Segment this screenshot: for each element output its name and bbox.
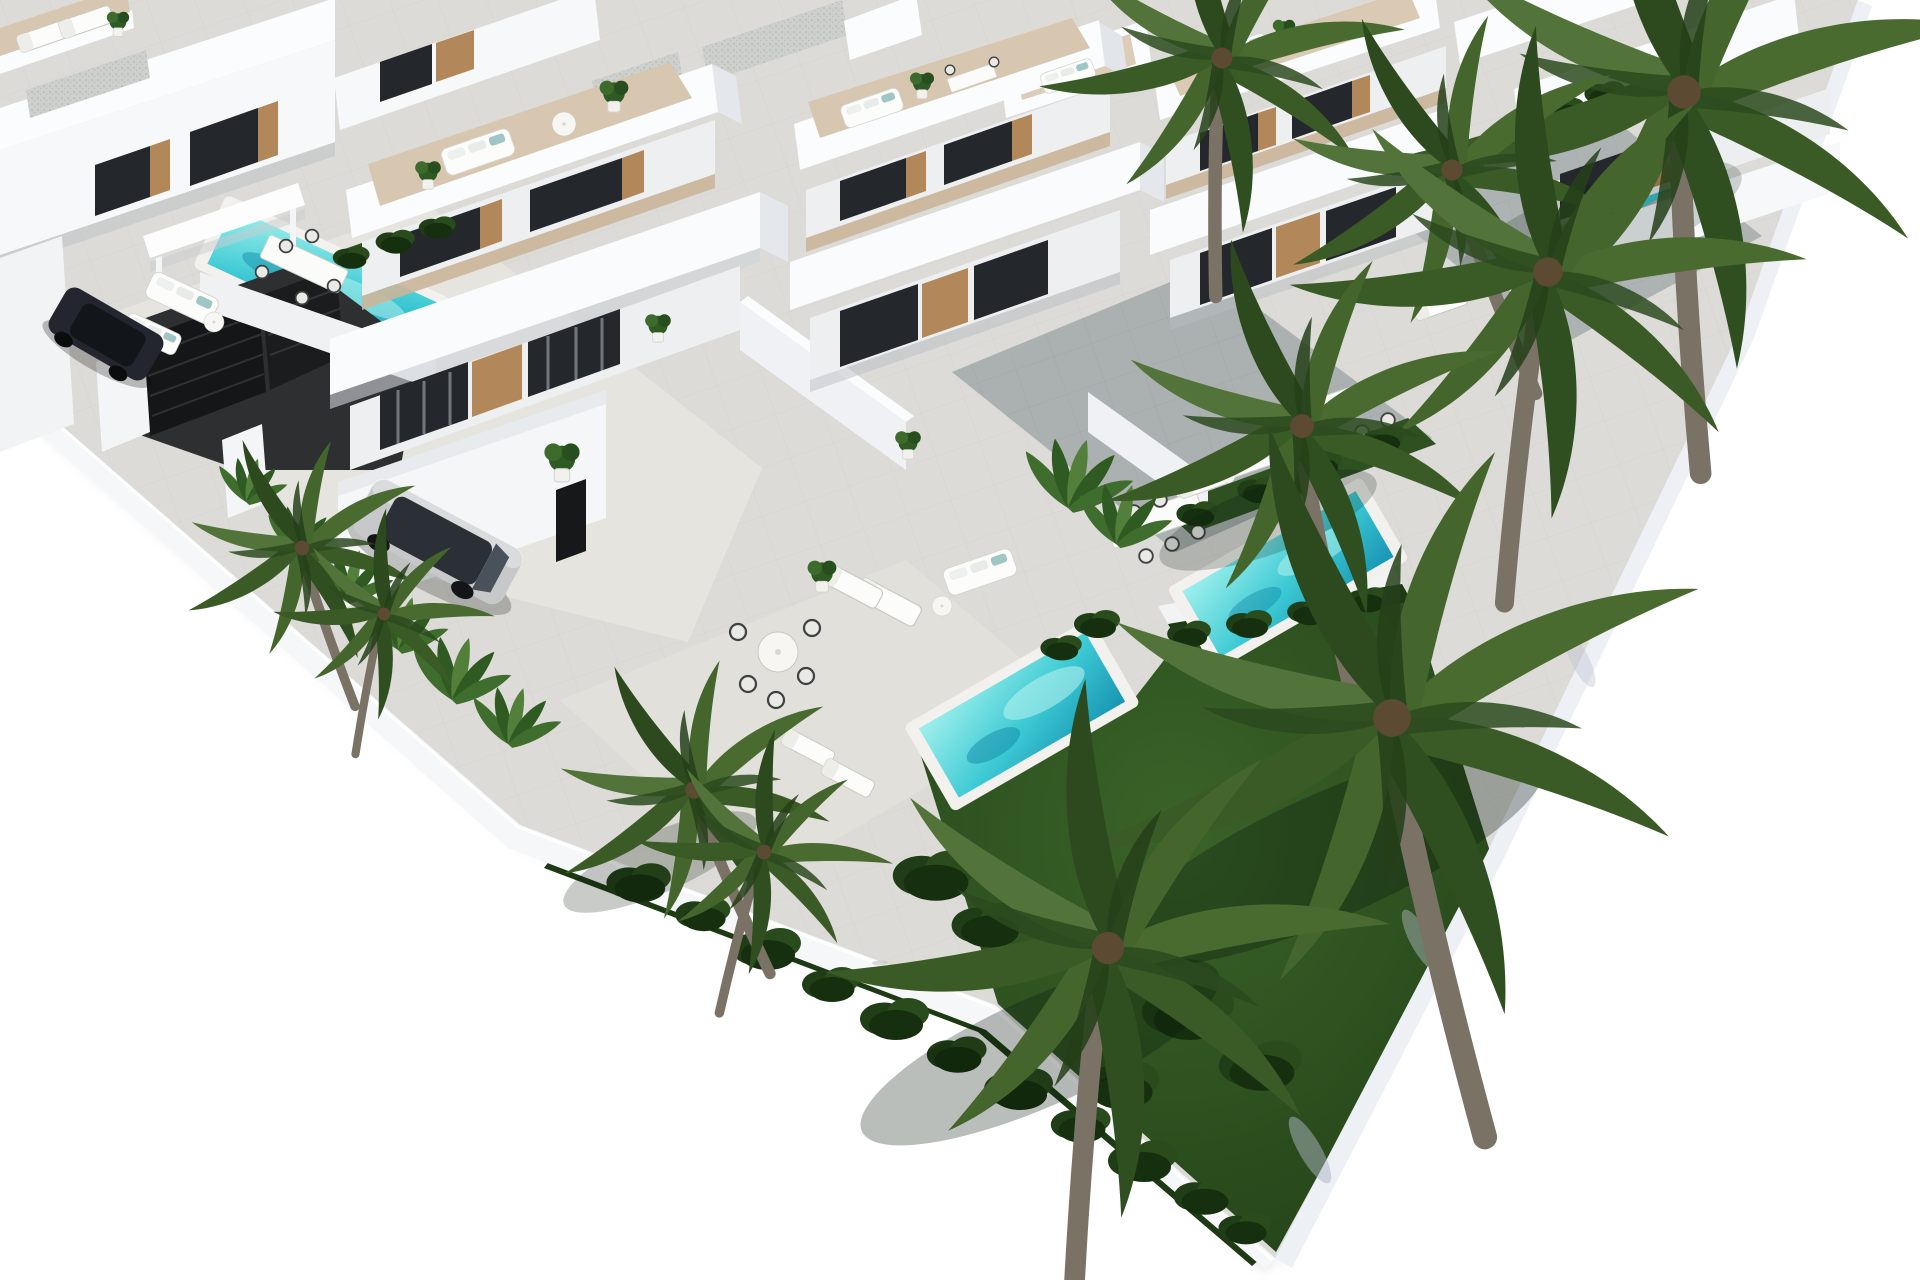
wire-chair	[945, 65, 955, 75]
render-artifact-smudge	[872, 961, 888, 966]
wire-chair	[280, 240, 293, 253]
render-canvas	[0, 0, 1920, 1280]
wire-chair	[328, 280, 341, 293]
coffee-table	[932, 596, 952, 616]
roof-table	[552, 112, 576, 136]
window-wood-panel	[622, 150, 644, 200]
wire-chair	[989, 57, 999, 67]
black-entry-door	[556, 479, 586, 562]
wire-chair	[730, 624, 746, 640]
wire-chair	[306, 230, 319, 243]
window-wood-panel	[480, 199, 502, 249]
wire-chair	[256, 266, 269, 279]
dining-table-round	[758, 632, 798, 672]
wire-chair	[768, 692, 784, 708]
gate-pillar	[222, 424, 268, 518]
window-wood-panel	[1012, 114, 1032, 161]
window-wood-panel	[1258, 107, 1276, 151]
architectural-render	[0, 0, 1920, 1280]
window-wood-panel	[1352, 75, 1370, 118]
window-wood-panel	[258, 101, 278, 162]
wire-chair	[296, 292, 309, 305]
wire-chair	[740, 676, 756, 692]
window-wood-panel	[150, 139, 170, 197]
wire-chair	[1139, 549, 1153, 563]
window-wood-panel	[906, 151, 926, 198]
wire-chair	[798, 668, 814, 684]
coffee-table	[204, 312, 224, 332]
wire-chair	[804, 620, 820, 636]
